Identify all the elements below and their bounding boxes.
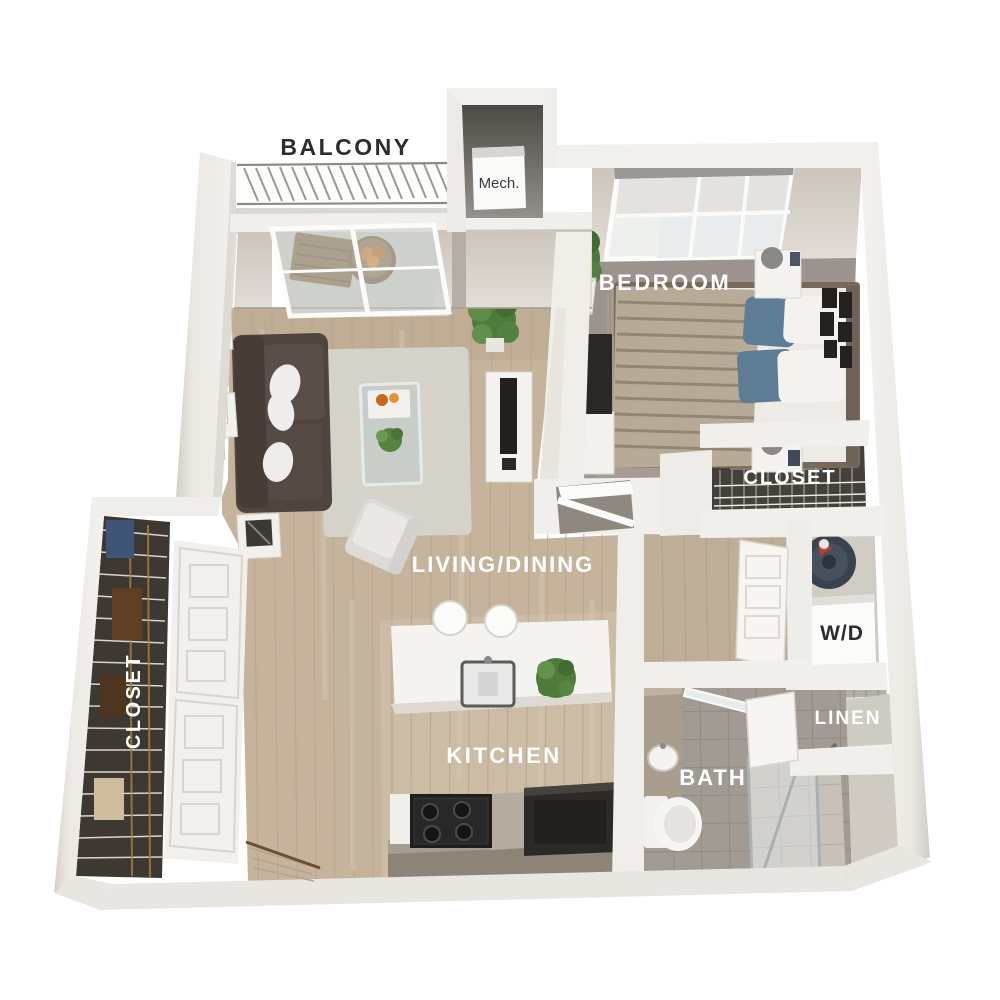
- svg-text:CLOSET: CLOSET: [743, 467, 836, 489]
- svg-text:Mech.: Mech.: [479, 175, 520, 192]
- svg-text:CLOSET: CLOSET: [123, 653, 145, 749]
- svg-text:BEDROOM: BEDROOM: [599, 270, 731, 295]
- svg-text:KITCHEN: KITCHEN: [446, 743, 561, 768]
- svg-text:BATH: BATH: [679, 765, 746, 790]
- svg-text:LIVING/DINING: LIVING/DINING: [412, 552, 594, 577]
- svg-text:W/D: W/D: [820, 622, 864, 645]
- svg-text:LINEN: LINEN: [815, 708, 882, 729]
- svg-text:BALCONY: BALCONY: [280, 134, 411, 160]
